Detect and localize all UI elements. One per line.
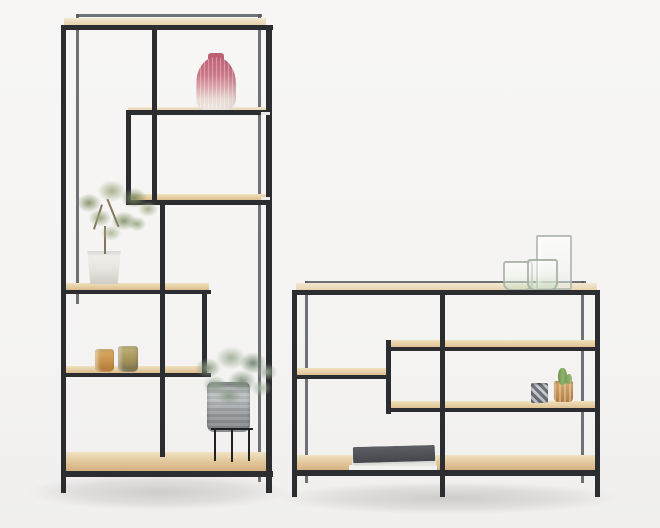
amber-votive-left bbox=[95, 349, 114, 372]
frame-joint-glint-lower bbox=[261, 197, 270, 200]
console-bottom-rail bbox=[292, 470, 600, 476]
eucalyptus-foliage bbox=[246, 376, 276, 400]
tall-unit-right-post bbox=[266, 25, 272, 493]
plant-stand-leg bbox=[231, 430, 233, 462]
frame-joint-glint-upper bbox=[261, 112, 270, 115]
tall-unit-rear-right-post bbox=[258, 14, 261, 482]
console-upper-right-shelf-rail bbox=[386, 347, 600, 351]
console-left-post bbox=[292, 290, 297, 497]
eucalyptus-foliage bbox=[212, 384, 246, 408]
console-middle-right-shelf-rail bbox=[386, 408, 600, 412]
gold-votive-right bbox=[118, 346, 138, 372]
grey-book bbox=[353, 445, 435, 465]
console-mid-divider bbox=[440, 295, 445, 497]
product-photo-stage bbox=[0, 0, 660, 528]
tall-unit-mid-divider bbox=[160, 205, 165, 457]
plant-stand-leg bbox=[214, 428, 216, 461]
drinking-glass-right bbox=[527, 259, 558, 291]
cactus-side-lobe bbox=[566, 374, 572, 384]
plant-stand-leg bbox=[248, 428, 250, 461]
tall-unit-mid-left-shelf-rail bbox=[61, 290, 211, 294]
white-plant-pot bbox=[85, 251, 123, 284]
tall-unit-bottom-rail bbox=[61, 471, 273, 477]
console-rear-right-post bbox=[581, 281, 584, 483]
tall-unit-top-divider bbox=[152, 25, 157, 205]
console-unit-floor-shadow bbox=[280, 482, 616, 514]
tall-unit-lower-left-shelf-rail bbox=[61, 373, 211, 377]
pink-ribbed-vase bbox=[196, 57, 236, 112]
olive-foliage bbox=[124, 214, 150, 234]
console-left-shelf-rail bbox=[292, 375, 388, 379]
tall-unit-box-top-rail bbox=[126, 110, 272, 115]
tall-unit-rear-left-post bbox=[76, 14, 79, 304]
olive-foliage bbox=[96, 222, 126, 244]
tall-unit-floor-shadow bbox=[30, 474, 288, 510]
console-right-post bbox=[595, 290, 600, 497]
console-top-front-rail bbox=[292, 290, 600, 295]
console-rear-left-post bbox=[305, 281, 308, 483]
tall-unit-top-front-rail bbox=[61, 25, 273, 30]
tall-unit-bottom-shelf bbox=[64, 452, 266, 473]
tall-unit-rear-top-rail bbox=[76, 14, 262, 17]
grey-faceted-votive bbox=[531, 383, 548, 403]
tall-unit-left-post bbox=[61, 25, 66, 493]
